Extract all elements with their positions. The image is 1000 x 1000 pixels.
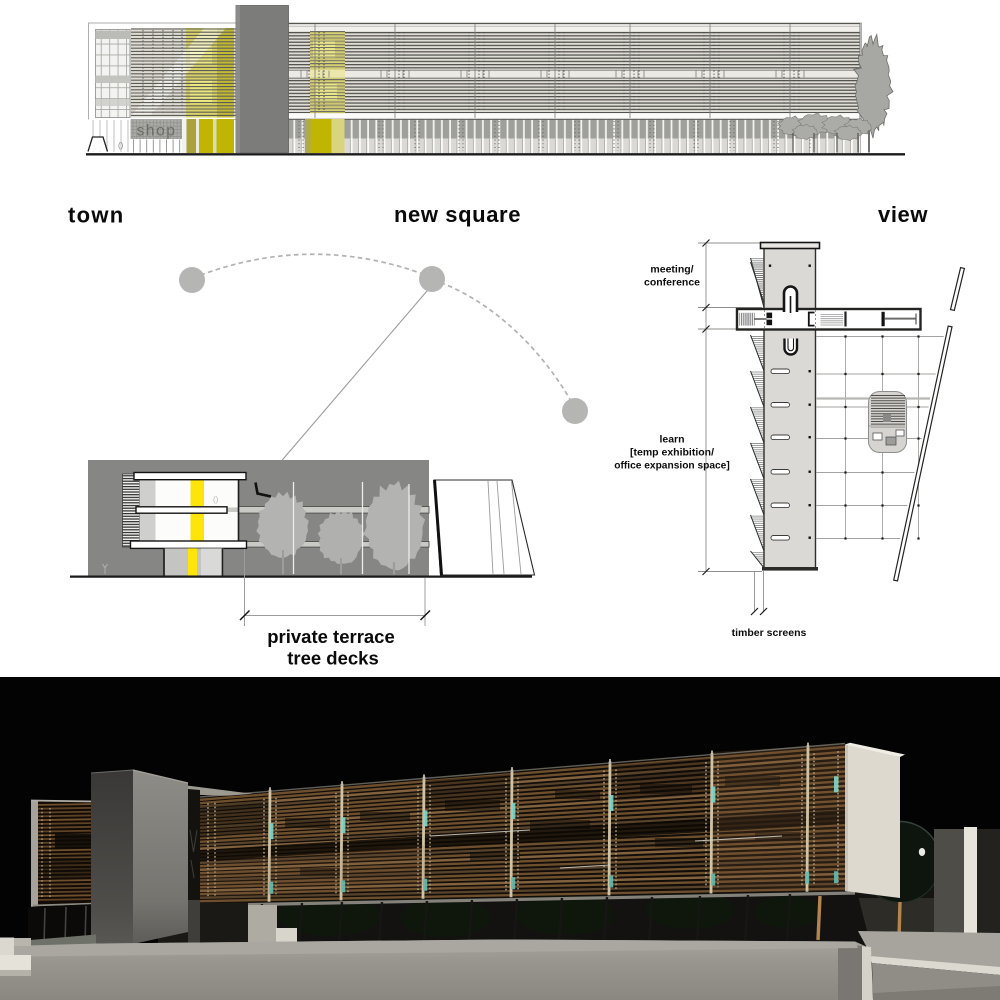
svg-text:shop: shop: [137, 123, 177, 140]
svg-text:view: view: [878, 202, 928, 227]
svg-text:(): (): [213, 495, 219, 504]
svg-text:new square: new square: [394, 202, 521, 227]
svg-text:private terrace: private terrace: [267, 626, 395, 647]
svg-text:(): (): [118, 141, 124, 150]
svg-text:[temp exhibition/: [temp exhibition/: [630, 447, 714, 459]
svg-text:office expansion space]: office expansion space]: [614, 461, 730, 472]
svg-text:timber screens: timber screens: [732, 627, 807, 639]
svg-text:conference: conference: [644, 277, 700, 289]
svg-text:meeting/: meeting/: [650, 264, 693, 276]
svg-text:learn: learn: [659, 434, 684, 446]
svg-text:town: town: [68, 203, 125, 228]
svg-text:tree decks: tree decks: [287, 648, 379, 669]
